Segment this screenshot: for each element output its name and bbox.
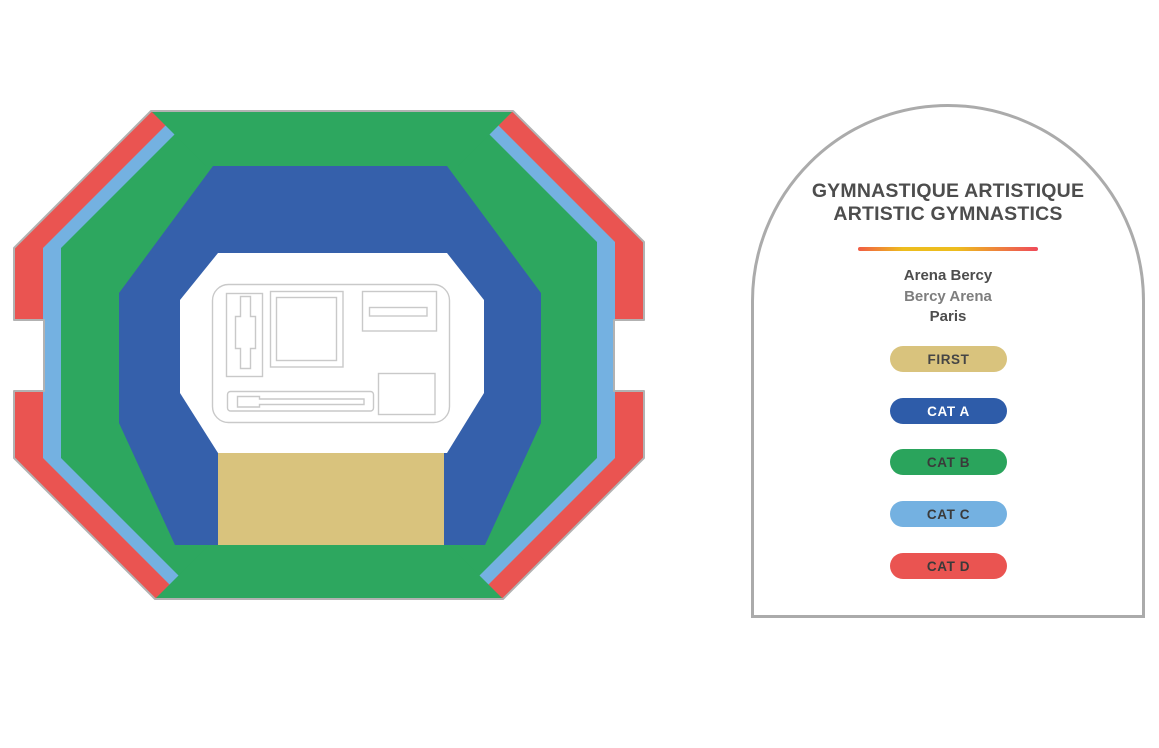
legend-pill-first[interactable]: FIRST — [890, 346, 1007, 372]
section-first[interactable] — [218, 453, 444, 545]
legend-pill-cat-d[interactable]: CAT D — [890, 553, 1007, 579]
legend-pill-cat-b[interactable]: CAT B — [890, 449, 1007, 475]
seating-map-page: GYMNASTIQUE ARTISTIQUE ARTISTIC GYMNASTI… — [0, 0, 1159, 748]
event-title-en: ARTISTIC GYMNASTICS — [754, 203, 1142, 226]
venue-info: Arena Bercy Bercy Arena Paris — [754, 266, 1142, 328]
legend-pill-cat-a[interactable]: CAT A — [890, 398, 1007, 424]
venue-name-fr: Arena Bercy — [754, 266, 1142, 287]
event-info-card: GYMNASTIQUE ARTISTIQUE ARTISTIC GYMNASTI… — [751, 104, 1145, 618]
venue-name-en: Bercy Arena — [754, 287, 1142, 308]
section-cat-b-bottom-band[interactable] — [155, 545, 503, 599]
event-title-fr: GYMNASTIQUE ARTISTIQUE — [754, 180, 1142, 203]
stadium-seating-map — [0, 98, 660, 606]
venue-city: Paris — [754, 307, 1142, 328]
legend-pill-cat-c[interactable]: CAT C — [890, 501, 1007, 527]
title-divider — [858, 247, 1038, 251]
section-cat-b-top-band[interactable] — [151, 111, 513, 166]
event-title: GYMNASTIQUE ARTISTIQUE ARTISTIC GYMNASTI… — [754, 180, 1142, 226]
